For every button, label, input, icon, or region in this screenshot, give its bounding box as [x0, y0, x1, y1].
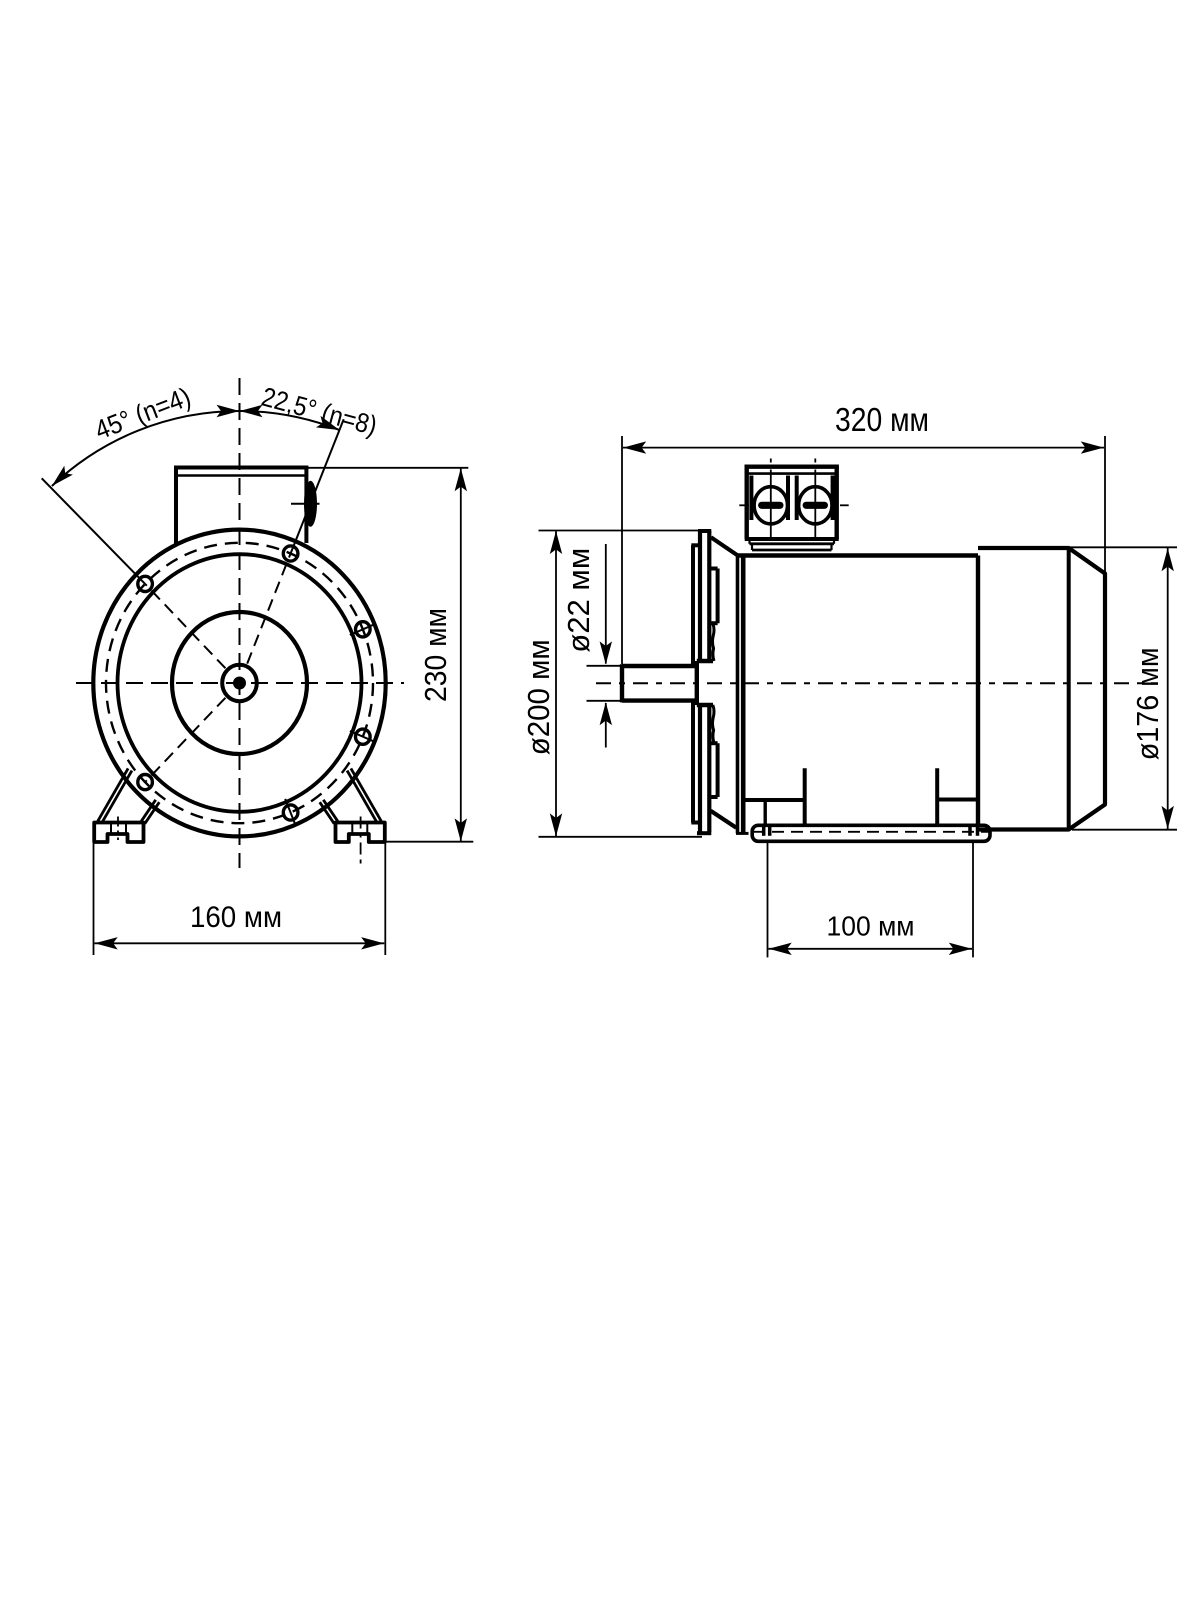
svg-text:ø200 мм: ø200 мм — [521, 639, 556, 755]
svg-text:100 мм: 100 мм — [827, 911, 915, 942]
svg-text:160 мм: 160 мм — [190, 901, 282, 934]
svg-text:320 мм: 320 мм — [835, 401, 929, 438]
svg-text:230 мм: 230 мм — [418, 608, 453, 702]
svg-text:ø176 мм: ø176 мм — [1130, 647, 1165, 760]
svg-text:ø22 мм: ø22 мм — [561, 548, 596, 653]
